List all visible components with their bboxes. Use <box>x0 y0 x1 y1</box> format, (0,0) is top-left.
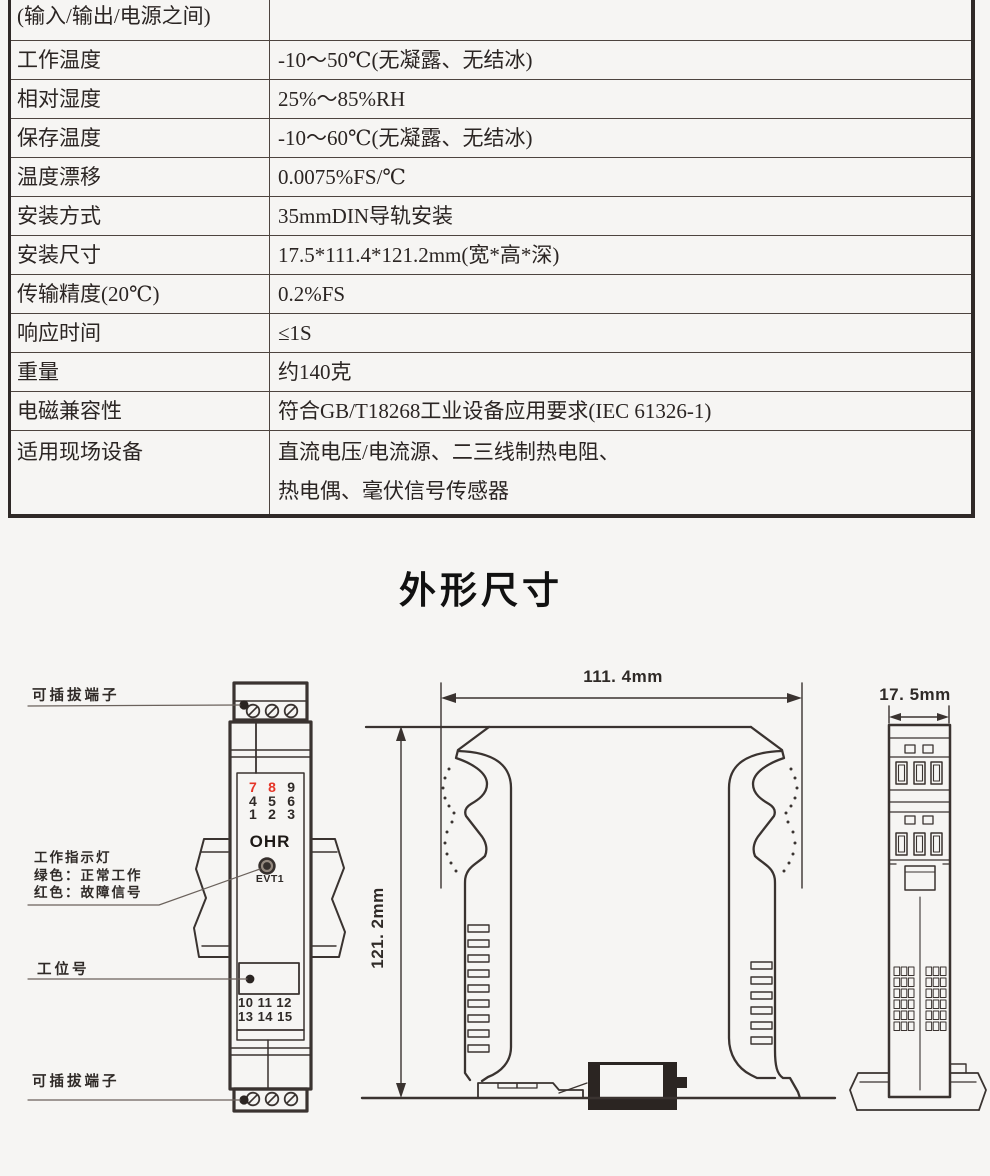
row-label: 相对湿度 <box>11 80 270 118</box>
terminal-numbers-top: 7 8 9 4 5 6 1 2 3 <box>249 781 295 822</box>
callout-top-terminal: 可插拔端子 <box>32 684 120 705</box>
dim-width: 111. 4mm <box>555 667 691 687</box>
callout-station: 工位号 <box>37 958 90 979</box>
row-label: 工作温度 <box>11 41 270 79</box>
row-value-line1: 直流电压/电流源、二三线制热电阻、 <box>278 433 971 472</box>
spec-table: (输入/输出/电源之间) 工作温度 -10～50℃(无凝露、无结冰) 相对湿度 … <box>8 0 975 518</box>
dim-height: 121. 2mm <box>368 858 388 998</box>
table-row: 安装尺寸 17.5*111.4*121.2mm(宽*高*深) <box>11 236 971 275</box>
section-title: 外形尺寸 <box>0 560 976 614</box>
callout-bottom-terminal: 可插拔端子 <box>32 1070 120 1091</box>
dim-depth: 17. 5mm <box>863 685 967 705</box>
indicator-line3: 红色：故障信号 <box>34 884 143 902</box>
indicator-line1: 工作指示灯 <box>34 849 143 867</box>
brand-logo: OHR <box>243 832 297 852</box>
row-value: 17.5*111.4*121.2mm(宽*高*深) <box>270 236 971 274</box>
row-label: 响应时间 <box>11 314 270 352</box>
row-label: 温度漂移 <box>11 158 270 196</box>
outline-dimension-drawing <box>0 640 990 1176</box>
table-row: 重量 约140克 <box>11 353 971 392</box>
callout-leader-lines <box>28 705 260 1100</box>
table-row: 工作温度 -10～50℃(无凝露、无结冰) <box>11 41 971 80</box>
row-value: 直流电压/电流源、二三线制热电阻、 热电偶、毫伏信号传感器 <box>270 431 971 514</box>
row-value: -10～60℃(无凝露、无结冰) <box>270 119 971 157</box>
row-label: 保存温度 <box>11 119 270 157</box>
side-view-drawing <box>362 683 835 1110</box>
callout-indicator: 工作指示灯 绿色：正常工作 红色：故障信号 <box>34 849 143 902</box>
table-row: 电磁兼容性 符合GB/T18268工业设备应用要求(IEC 61326-1) <box>11 392 971 431</box>
end-view-drawing <box>850 706 986 1110</box>
row-value: ≤1S <box>270 314 971 352</box>
terminal-number-row: 13 14 15 <box>238 1010 300 1024</box>
led-label: EVT1 <box>243 873 297 885</box>
terminal-numbers-bottom: 10 11 12 13 14 15 <box>238 996 300 1023</box>
row-label: 安装方式 <box>11 197 270 235</box>
spec-page: (输入/输出/电源之间) 工作温度 -10～50℃(无凝露、无结冰) 相对湿度 … <box>0 0 990 1176</box>
table-row: 传输精度(20℃) 0.2%FS <box>11 275 971 314</box>
row-label: 传输精度(20℃) <box>11 275 270 313</box>
row-label: 重量 <box>11 353 270 391</box>
row-label: 安装尺寸 <box>11 236 270 274</box>
terminal-number: 3 <box>287 808 295 822</box>
row-value-line2: 热电偶、毫伏信号传感器 <box>278 472 971 511</box>
table-row: 安装方式 35mmDIN导轨安装 <box>11 197 971 236</box>
row-value <box>270 0 971 40</box>
table-row: 保存温度 -10～60℃(无凝露、无结冰) <box>11 119 971 158</box>
table-row: 响应时间 ≤1S <box>11 314 971 353</box>
row-value: 25%～85%RH <box>270 80 971 118</box>
terminal-number: 2 <box>268 808 276 822</box>
indicator-line2: 绿色：正常工作 <box>34 867 143 885</box>
dotted-grip-arcs <box>442 768 799 873</box>
terminal-number-row: 10 11 12 <box>238 996 300 1010</box>
row-value: 符合GB/T18268工业设备应用要求(IEC 61326-1) <box>270 392 971 430</box>
row-value: 35mmDIN导轨安装 <box>270 197 971 235</box>
row-label: (输入/输出/电源之间) <box>11 0 270 40</box>
row-value: -10～50℃(无凝露、无结冰) <box>270 41 971 79</box>
terminal-number: 1 <box>249 808 257 822</box>
row-value: 0.2%FS <box>270 275 971 313</box>
row-value: 0.0075%FS/℃ <box>270 158 971 196</box>
table-row: 适用现场设备 直流电压/电流源、二三线制热电阻、 热电偶、毫伏信号传感器 <box>11 431 971 514</box>
table-row: 相对湿度 25%～85%RH <box>11 80 971 119</box>
row-label: 电磁兼容性 <box>11 392 270 430</box>
table-row: 温度漂移 0.0075%FS/℃ <box>11 158 971 197</box>
table-row: (输入/输出/电源之间) <box>11 0 971 41</box>
row-value: 约140克 <box>270 353 971 391</box>
row-label: 适用现场设备 <box>11 431 270 514</box>
